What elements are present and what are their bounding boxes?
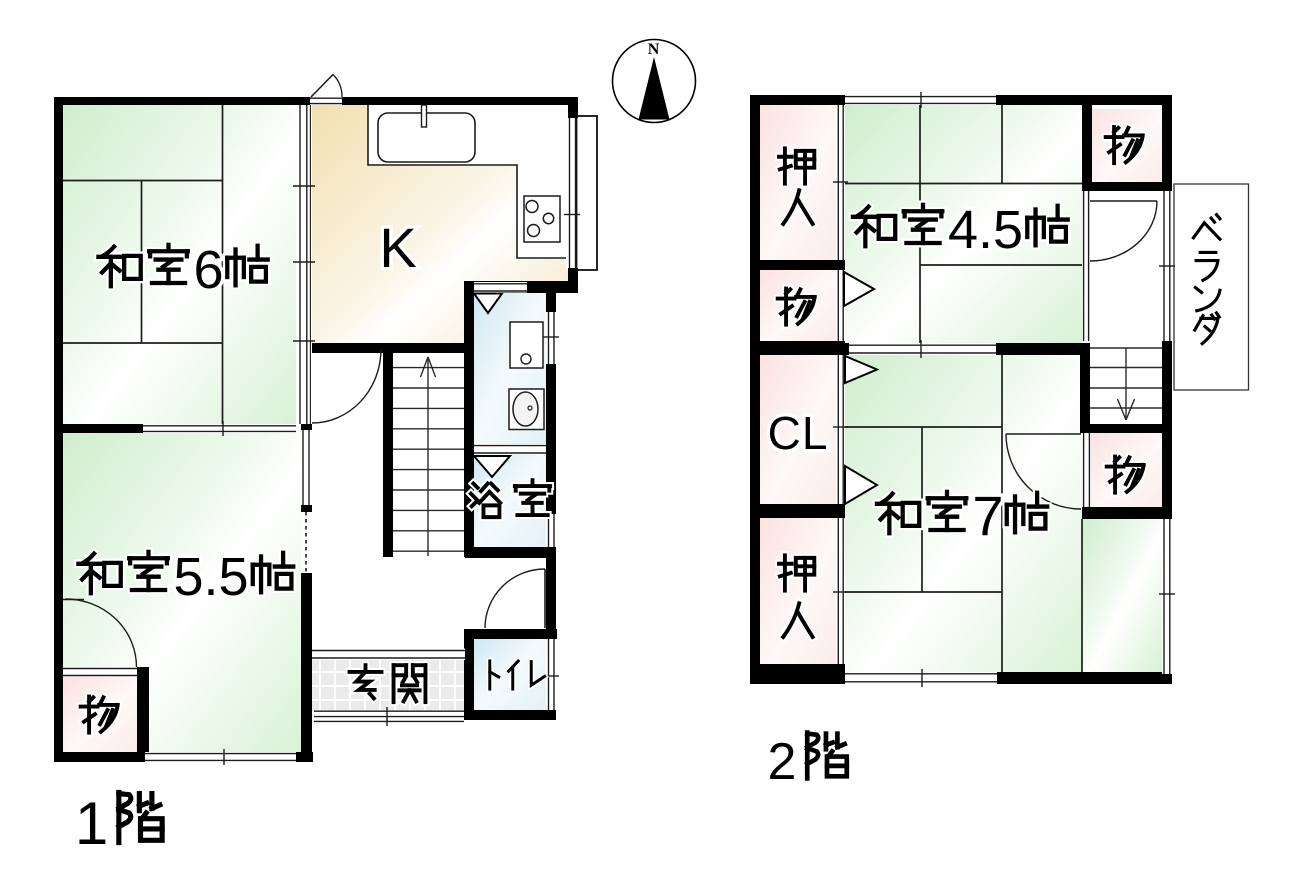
svg-text:CL: CL <box>768 407 829 459</box>
svg-text:5.5: 5.5 <box>173 547 248 607</box>
svg-text:2: 2 <box>768 733 797 791</box>
svg-text:4.5: 4.5 <box>948 200 1023 260</box>
svg-text:1: 1 <box>75 790 108 857</box>
svg-text:N: N <box>648 41 660 58</box>
svg-text:6: 6 <box>193 240 223 300</box>
svg-text:K: K <box>379 216 416 279</box>
svg-text:7: 7 <box>972 484 1003 547</box>
